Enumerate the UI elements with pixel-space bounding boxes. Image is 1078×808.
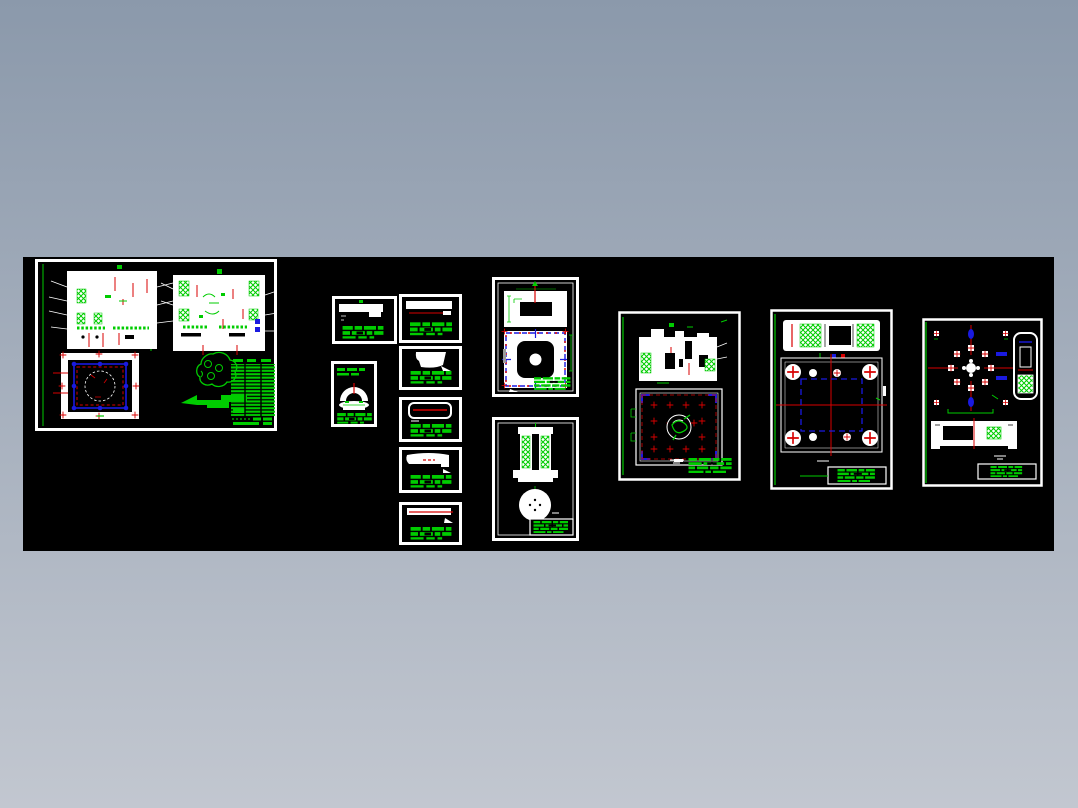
view-section-b xyxy=(161,269,277,355)
sheet-r4 xyxy=(399,447,462,493)
view-bottom-bar xyxy=(931,418,1017,449)
sheet-r1 xyxy=(399,294,462,343)
sheet-o xyxy=(770,309,893,490)
view-section-a xyxy=(49,265,173,349)
sheet-m1 xyxy=(492,277,579,397)
sheet-r5 xyxy=(399,502,462,545)
sheet-l1 xyxy=(332,296,397,344)
sheet-n xyxy=(618,311,741,481)
sheet-l2 xyxy=(331,361,377,427)
bom-table xyxy=(231,359,275,425)
sheet-r2 xyxy=(399,346,462,390)
sheet-assembly xyxy=(35,259,277,431)
view-plate-plan xyxy=(776,354,887,456)
sheet-p xyxy=(922,318,1043,487)
drawing-canvas xyxy=(23,257,1054,551)
sheet-r3 xyxy=(399,397,462,442)
view-side xyxy=(1014,333,1037,399)
view-plan xyxy=(53,351,139,420)
sheet-m2 xyxy=(492,417,579,541)
preview-image xyxy=(0,0,1078,808)
